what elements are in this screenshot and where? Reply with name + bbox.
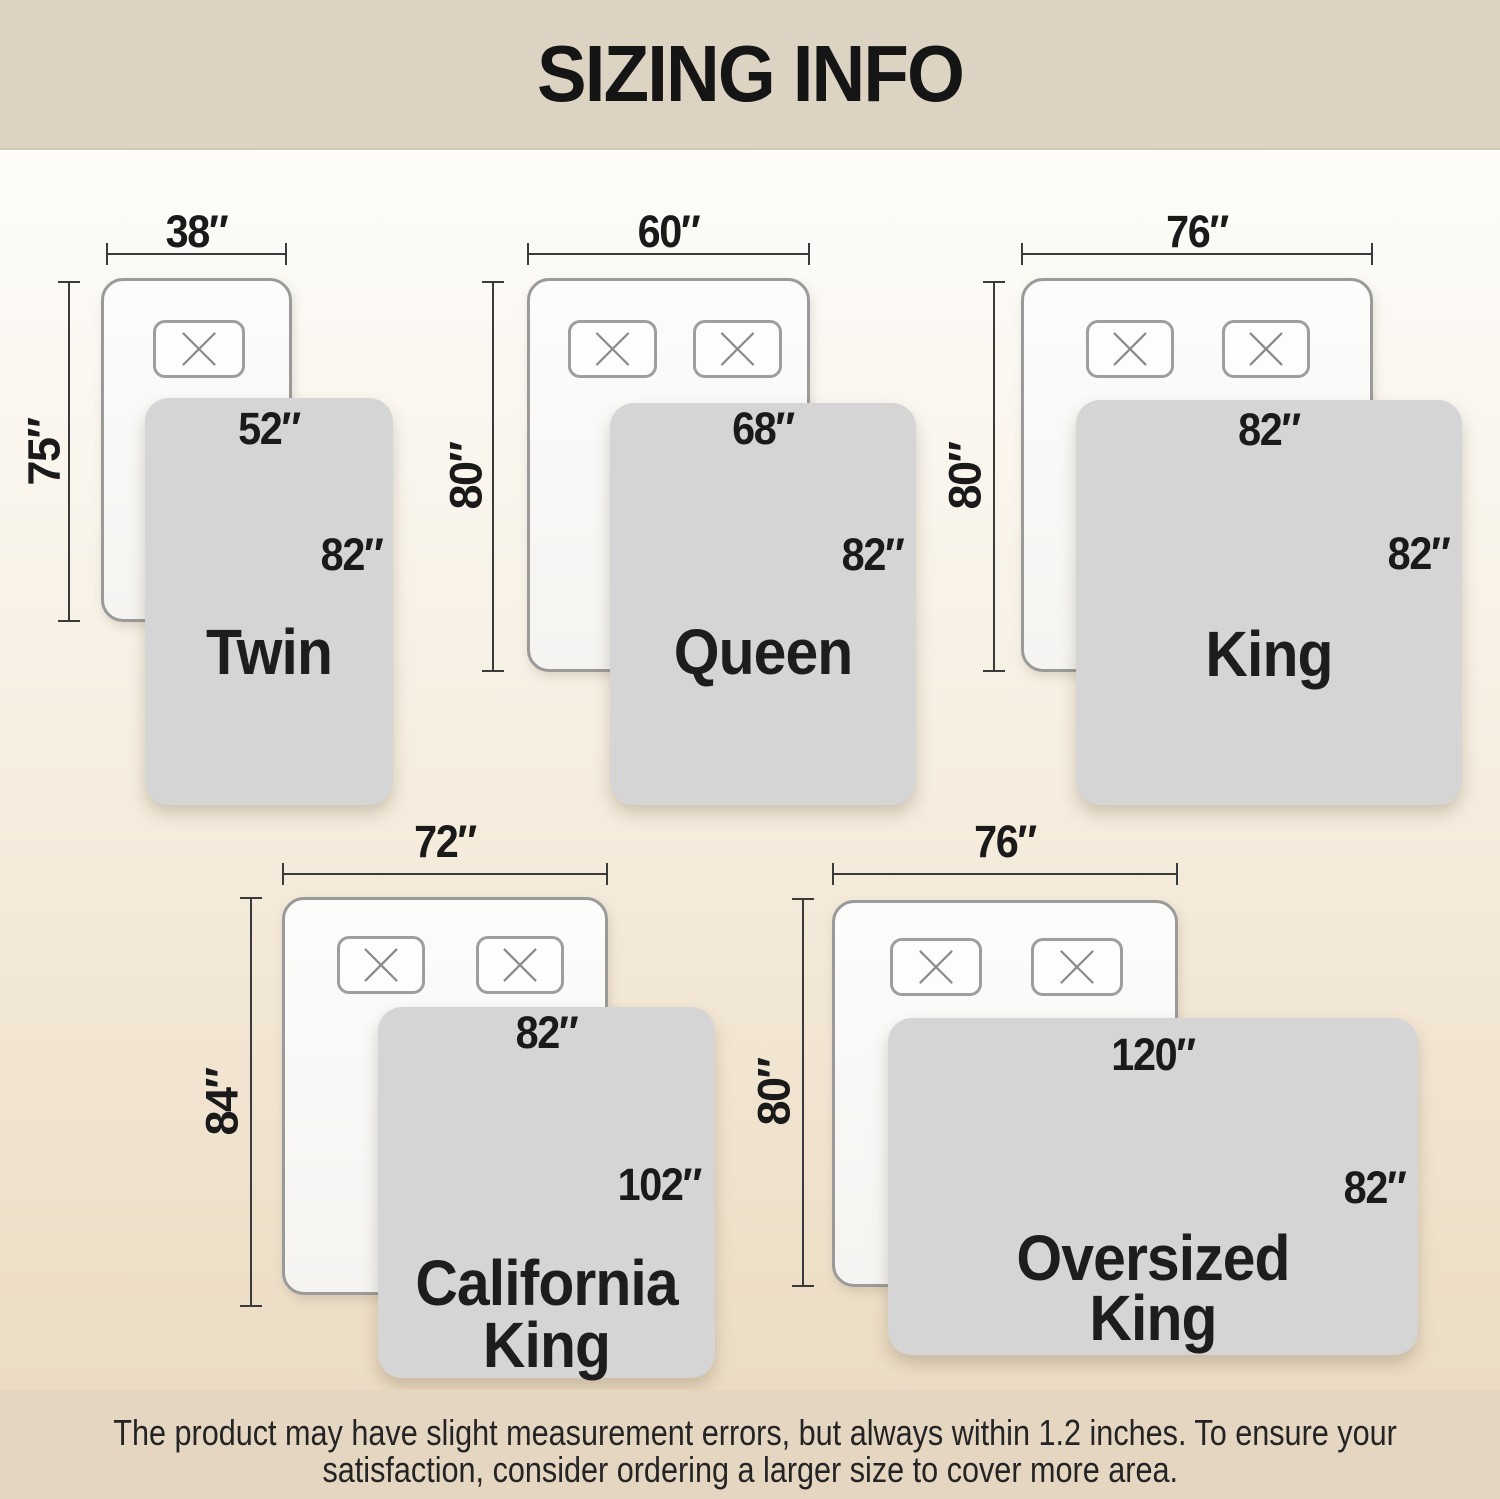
pillow <box>1222 320 1310 378</box>
bed-name-label: Twin <box>155 620 383 684</box>
length-dimension-label: 80″ <box>752 1058 797 1125</box>
pillow-x-icon <box>1089 323 1171 375</box>
disclaimer-band: The product may have slight measurement … <box>0 1390 1500 1499</box>
pillow <box>476 936 564 994</box>
pillow <box>153 320 245 378</box>
width-dimension-line <box>1021 253 1373 255</box>
length-dimension-line <box>250 897 252 1307</box>
blanket-length-label: 82″ <box>842 532 904 577</box>
blanket-width-label: 120″ <box>909 1032 1397 1077</box>
length-dimension-line <box>993 281 995 672</box>
bed-name-label: King <box>1091 622 1446 686</box>
blanket-length-label: 82″ <box>1388 531 1450 576</box>
width-dimension-label: 72″ <box>295 819 595 864</box>
length-dimension-label: 75″ <box>22 418 67 485</box>
pillow-x-icon <box>156 323 242 375</box>
disclaimer-line-2: satisfaction, consider ordering a larger… <box>322 1451 1178 1488</box>
width-dimension-label: 76″ <box>1035 209 1359 254</box>
page-title: SIZING INFO <box>537 28 963 120</box>
pillow <box>337 936 425 994</box>
pillow <box>693 320 782 378</box>
pillow-x-icon <box>893 941 979 993</box>
width-dimension-line <box>832 873 1178 875</box>
width-dimension-line <box>282 873 608 875</box>
pillow-x-icon <box>1034 941 1120 993</box>
width-dimension-label: 60″ <box>538 209 798 254</box>
blanket-length-label: 82″ <box>321 532 383 577</box>
blanket-width-label: 82″ <box>391 1010 701 1055</box>
length-dimension-label: 80″ <box>444 442 489 509</box>
pillow-x-icon <box>1225 323 1307 375</box>
length-dimension-line <box>492 281 494 672</box>
blanket-width-label: 52″ <box>155 406 383 451</box>
header-banner: SIZING INFO <box>0 0 1500 150</box>
width-dimension-line <box>527 253 810 255</box>
length-dimension-label: 84″ <box>200 1068 245 1135</box>
blanket-width-label: 68″ <box>622 406 904 451</box>
blanket: 82″ 102″ CaliforniaKing <box>378 1007 715 1378</box>
blanket: 68″ 82″ Queen <box>610 403 916 805</box>
blanket: 82″ 82″ King <box>1076 400 1462 805</box>
length-dimension-line <box>802 898 804 1287</box>
disclaimer-text: The product may have slight measurement … <box>0 1390 1500 1488</box>
pillow-x-icon <box>340 939 422 991</box>
blanket: 52″ 82″ Twin <box>145 398 393 805</box>
bed-name-label: Queen <box>622 620 904 684</box>
bed-name-label: OversizedKing <box>909 1228 1397 1348</box>
disclaimer-line-1: The product may have slight measurement … <box>113 1414 1397 1451</box>
width-dimension-line <box>106 253 287 255</box>
width-dimension-label: 38″ <box>113 209 280 254</box>
blanket: 120″ 82″ OversizedKing <box>888 1018 1418 1355</box>
length-dimension-label: 80″ <box>943 442 988 509</box>
blanket-width-label: 82″ <box>1091 407 1446 452</box>
width-dimension-label: 76″ <box>846 819 1164 864</box>
pillow-x-icon <box>571 323 654 375</box>
pillow <box>1086 320 1174 378</box>
pillow <box>568 320 657 378</box>
pillow <box>1031 938 1123 996</box>
pillow-x-icon <box>696 323 779 375</box>
pillow-x-icon <box>479 939 561 991</box>
length-dimension-line <box>68 281 70 622</box>
pillow <box>890 938 982 996</box>
blanket-length-label: 102″ <box>618 1162 701 1207</box>
bed-name-label: CaliforniaKing <box>391 1252 701 1376</box>
blanket-length-label: 82″ <box>1344 1165 1406 1210</box>
sizing-infographic: SIZING INFO 38″ 75″ 52″ 82″ Twin 60″ 80″… <box>0 0 1500 1499</box>
